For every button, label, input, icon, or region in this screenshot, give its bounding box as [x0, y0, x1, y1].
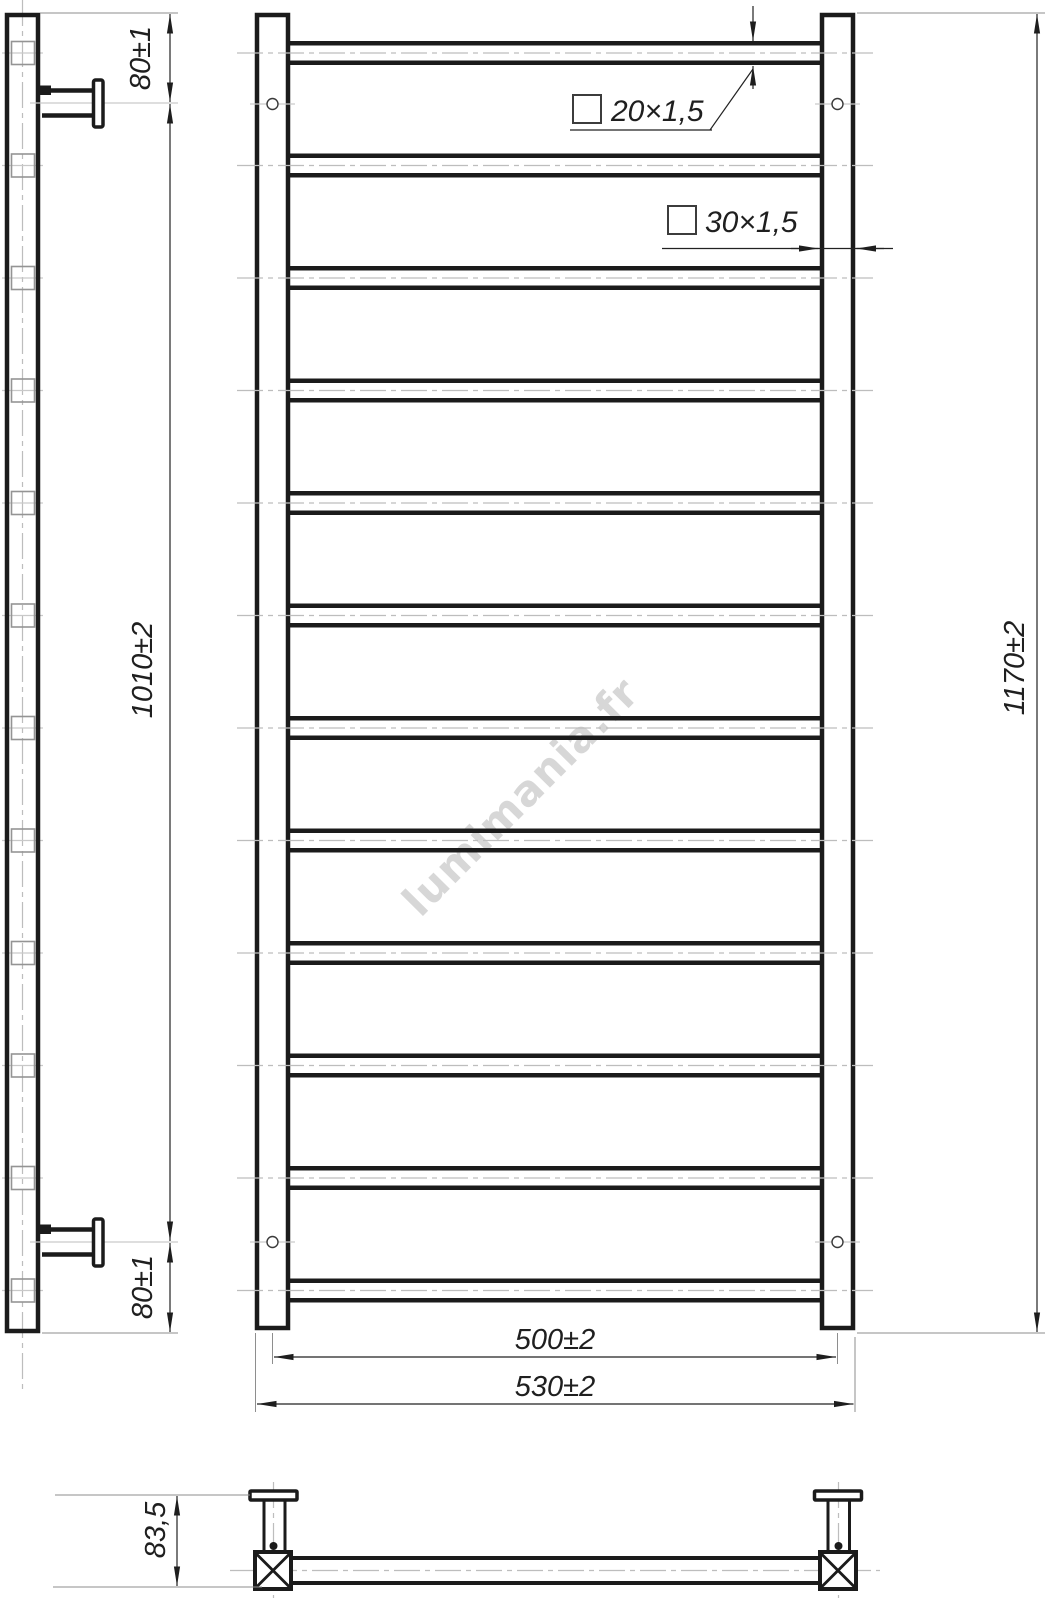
centers-width-label: 500±2	[515, 1324, 595, 1356]
bottom-offset-label: 80±1	[127, 1255, 159, 1319]
bracket-flange	[250, 1491, 297, 1500]
bracket-screw	[270, 1542, 278, 1550]
watermark: lumimania.fr	[393, 668, 649, 926]
dim-centers-width: 500±2	[273, 1324, 838, 1364]
mounting-hole	[267, 99, 278, 110]
mounting-hole	[832, 99, 843, 110]
dim-bracket-depth: 83,5	[53, 1495, 262, 1587]
left-post	[257, 15, 288, 1328]
post-profile-callout: 30×1,5	[662, 206, 893, 249]
mounting-hole	[832, 1237, 843, 1248]
side-view: 80±1 1010±2 80±1	[2, 0, 178, 1392]
post-profile-label: 30×1,5	[705, 206, 798, 239]
dim-overall-height: 1170±2	[857, 13, 1045, 1333]
right-post	[822, 15, 853, 1328]
overall-width-label: 530±2	[515, 1371, 595, 1403]
overall-height-label: 1170±2	[999, 621, 1031, 715]
square-profile-icon	[668, 206, 696, 234]
rung-profile-callout: 20×1,5	[570, 6, 753, 130]
mounting-hole	[267, 1237, 278, 1248]
dim-left-stack: 80±1 1010±2 80±1	[40, 13, 178, 1333]
bracket-flange	[94, 80, 104, 127]
top-offset-label: 80±1	[125, 26, 157, 90]
technical-drawing: lumimania.fr 20×1,5	[0, 0, 1046, 1600]
rung-profile-label: 20×1,5	[610, 95, 704, 128]
bottom-view: 83,5	[53, 1482, 880, 1598]
bracket-depth-label: 83,5	[140, 1501, 172, 1558]
square-profile-icon	[573, 95, 601, 123]
bracket-screw	[835, 1542, 843, 1550]
bracket-spacing-label: 1010±2	[127, 622, 159, 719]
bracket-flange	[94, 1219, 104, 1266]
callout-leader	[710, 69, 753, 130]
drawing-canvas: lumimania.fr 20×1,5	[0, 0, 1046, 1600]
watermark-text: lumimania.fr	[393, 668, 649, 926]
bracket-flange	[815, 1491, 862, 1500]
